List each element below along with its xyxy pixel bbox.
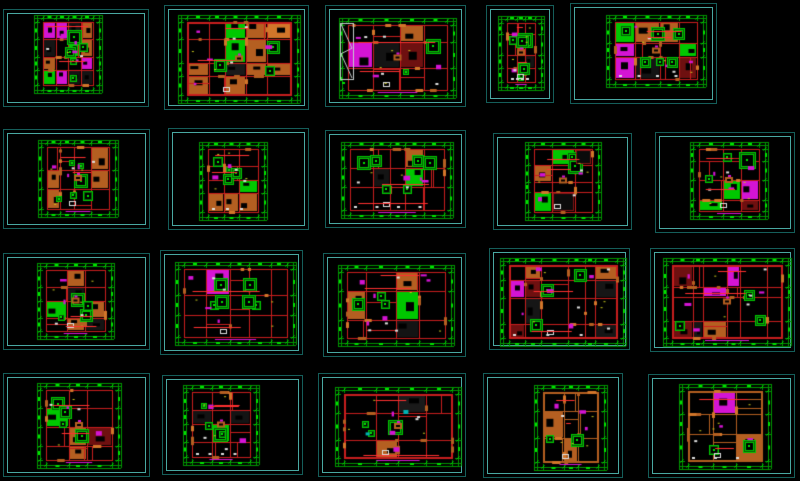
floor-plan-drawing-r4c3: [319, 374, 467, 478]
plan-thumbnail-r1c2[interactable]: [164, 5, 309, 110]
plan-thumbnail-r4c4[interactable]: [483, 373, 623, 478]
floor-plan-drawing-r2c5: [656, 133, 796, 234]
floor-plan-drawing-r2c4: [494, 134, 633, 231]
floor-plan-drawing-r3c3: [324, 254, 467, 358]
plan-thumbnail-r4c1[interactable]: [3, 373, 150, 477]
plan-thumbnail-r2c3[interactable]: [325, 130, 466, 228]
cad-sheet: [0, 0, 800, 481]
plan-thumbnail-r1c5[interactable]: [570, 3, 717, 104]
floor-plan-drawing-r3c5: [651, 249, 796, 353]
plan-thumbnail-r4c3[interactable]: [318, 373, 466, 477]
floor-plan-drawing-r1c1: [4, 10, 150, 108]
floor-plan-drawing-r4c2: [163, 376, 304, 476]
plan-thumbnail-r3c5[interactable]: [650, 248, 795, 352]
floor-plan-drawing-r4c4: [484, 374, 624, 479]
floor-plan-drawing-r3c2: [161, 251, 304, 356]
floor-plan-drawing-r4c5: [649, 375, 796, 479]
plan-thumbnail-r3c3[interactable]: [323, 253, 466, 357]
floor-plan-drawing-r3c4: [490, 249, 631, 351]
floor-plan-drawing-r2c2: [169, 129, 310, 231]
plan-thumbnail-r2c2[interactable]: [168, 128, 309, 230]
plan-thumbnail-r1c4[interactable]: [486, 5, 554, 103]
floor-plan-drawing-r4c1: [4, 374, 151, 478]
plan-thumbnail-r3c4[interactable]: [489, 248, 630, 350]
floor-plan-drawing-r1c2: [165, 6, 310, 111]
plan-thumbnail-r2c4[interactable]: [493, 133, 632, 230]
floor-plan-drawing-r1c4: [487, 6, 555, 104]
floor-plan-drawing-r1c3: [326, 6, 467, 108]
plan-thumbnail-r2c1[interactable]: [3, 129, 150, 229]
plan-thumbnail-r1c1[interactable]: [3, 9, 149, 107]
plan-thumbnail-r3c2[interactable]: [160, 250, 303, 355]
plan-thumbnail-r2c5[interactable]: [655, 132, 795, 233]
floor-plan-drawing-r2c1: [4, 130, 151, 230]
plan-thumbnail-r3c1[interactable]: [3, 253, 150, 350]
plan-thumbnail-r4c2[interactable]: [162, 375, 303, 475]
plan-thumbnail-r1c3[interactable]: [325, 5, 466, 107]
floor-plan-drawing-r1c5: [571, 4, 718, 105]
plan-thumbnail-r4c5[interactable]: [648, 374, 795, 478]
floor-plan-drawing-r2c3: [326, 131, 467, 229]
floor-plan-drawing-r3c1: [4, 254, 151, 351]
